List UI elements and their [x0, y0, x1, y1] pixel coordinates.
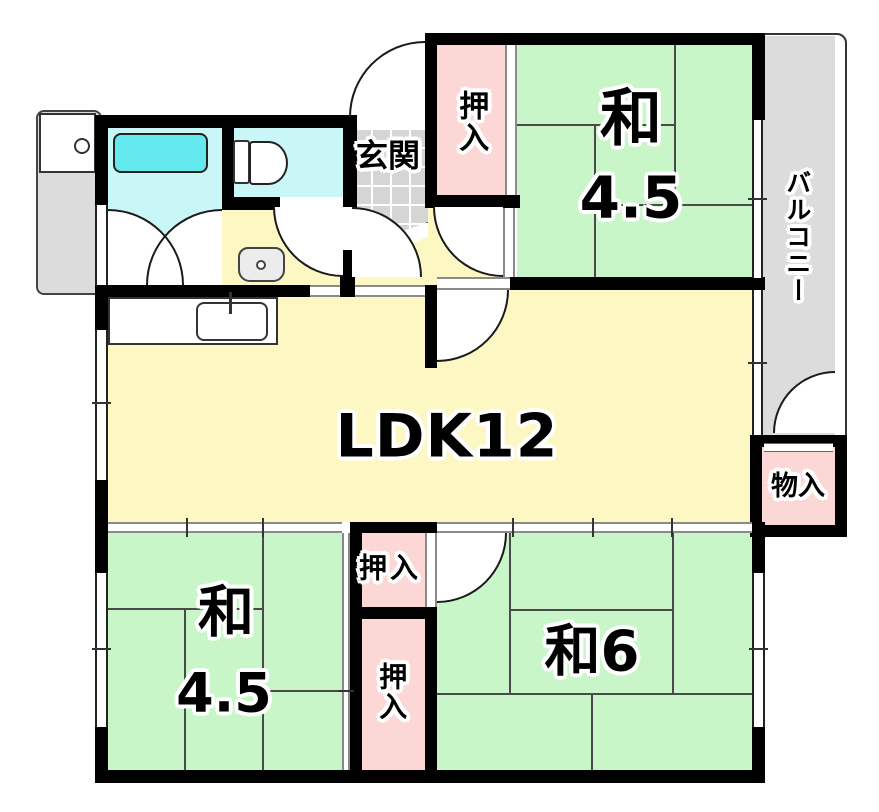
wall — [750, 525, 847, 537]
track-tick — [592, 518, 594, 537]
kitchen-faucet — [229, 292, 232, 314]
toilet-bowl — [249, 141, 288, 185]
sliding-door-track — [425, 533, 437, 607]
wall — [95, 115, 357, 128]
tatami-line — [437, 693, 752, 695]
japanese-room-top-name: 和 — [600, 86, 662, 149]
washer-drain-icon — [74, 138, 90, 154]
japanese-room-bottom-right-label: 和6 — [545, 623, 640, 680]
wall — [425, 33, 437, 195]
window — [95, 573, 108, 727]
wall — [350, 522, 437, 533]
tatami-line — [262, 690, 342, 692]
front-door-swing — [349, 41, 425, 117]
window — [95, 330, 108, 480]
tatami-line — [262, 533, 264, 770]
sliding-door-track — [342, 533, 350, 770]
closet-top-label: 押入 — [455, 90, 486, 154]
track-tick — [338, 690, 354, 692]
wall — [222, 197, 280, 210]
sliding-door-track — [437, 277, 510, 290]
track-tick — [512, 518, 514, 537]
track-tick — [671, 518, 673, 537]
wall — [835, 435, 847, 537]
window-tick — [92, 402, 111, 404]
track-tick — [262, 518, 264, 537]
japanese-room-top-floor — [517, 45, 752, 277]
entrance-label: 玄関 — [356, 140, 420, 173]
track-tick — [186, 518, 188, 537]
ldk-label: LDK12 — [335, 406, 558, 467]
wall — [350, 607, 437, 619]
kitchen-sink — [196, 302, 268, 341]
japanese-room-bottom-left-size: 4.5 — [176, 665, 272, 720]
wall — [343, 128, 357, 210]
window-tick — [92, 648, 111, 650]
sliding-door-track — [503, 208, 515, 277]
wall — [752, 33, 765, 120]
wall — [95, 285, 310, 297]
wall — [95, 770, 765, 783]
wall — [510, 277, 765, 290]
tatami-line — [672, 533, 674, 695]
window-tick — [748, 362, 767, 364]
window-tick — [749, 648, 768, 650]
balcony-label: バルコニー — [784, 170, 810, 305]
tatami-line — [509, 533, 511, 695]
window — [752, 573, 765, 727]
sliding-door-track — [355, 285, 425, 297]
wall — [95, 128, 108, 205]
tatami-line — [509, 609, 674, 611]
closet-middle-lower-label: 押入 — [377, 662, 406, 722]
washbasin-drain-icon — [256, 260, 266, 270]
toilet-tank — [233, 140, 250, 184]
japanese-room-top-size: 4.5 — [580, 168, 683, 227]
sliding-door-track — [108, 522, 342, 533]
storage-label: 物入 — [771, 473, 825, 501]
tatami-line — [591, 693, 593, 770]
japanese-room-bottom-left-floor — [108, 533, 342, 770]
sliding-door-track — [505, 45, 517, 195]
japanese-room-bottom-left-name: 和 — [198, 584, 254, 641]
porch-door-opening — [95, 205, 108, 285]
wall — [425, 33, 765, 45]
floor-plan: 玄関 押入 和 4.5 バルコニー LDK12 物入 押入 押入 和 4.5 和… — [0, 0, 879, 812]
wall — [425, 607, 437, 770]
wall — [425, 285, 437, 368]
window-tick — [748, 198, 767, 200]
sliding-door-track — [310, 285, 340, 297]
closet-middle-upper-label: 押入 — [359, 555, 421, 584]
sliding-door-track — [437, 522, 752, 533]
bathtub — [113, 133, 208, 173]
storage-door-opening — [764, 443, 833, 452]
